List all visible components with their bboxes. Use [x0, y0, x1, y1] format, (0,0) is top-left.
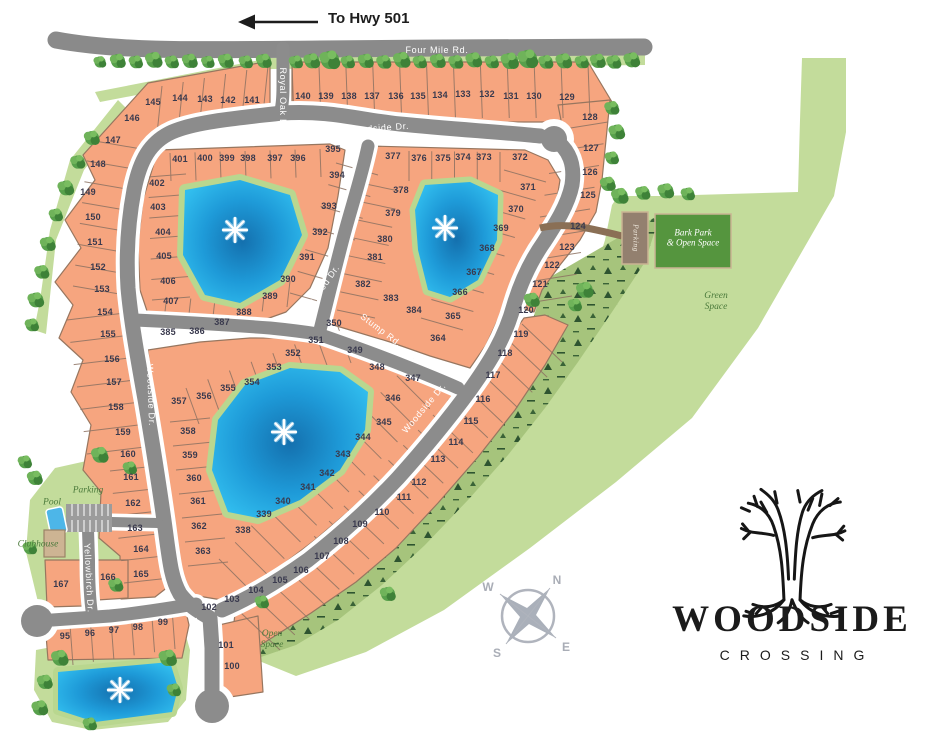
block-lot-167: [45, 560, 82, 607]
roundabout: [541, 126, 567, 152]
pool-parking-lot: [66, 504, 112, 532]
road-yellowbirch-dr: [88, 530, 92, 614]
bark-park-parking: [622, 212, 648, 264]
cul-de-sac-south: [195, 689, 229, 723]
to-hwy-501-label: To Hwy 501: [328, 10, 409, 27]
bark-park-area: [655, 214, 731, 268]
pond-4: [58, 662, 178, 722]
site-map-page: To Hwy 501 95969798991001011021031041051…: [0, 0, 934, 739]
logo-name: WOODSIDE: [642, 598, 934, 641]
compass-rose: [500, 588, 556, 644]
logo: WOODSIDE CROSSING: [642, 470, 934, 663]
road-four-mile-rd: [56, 40, 644, 50]
logo-subtitle: CROSSING: [642, 647, 934, 663]
clubhouse: [44, 530, 65, 557]
road-parking-drive: [112, 522, 158, 523]
cul-de-sac-west: [21, 605, 53, 637]
road-royal-oak-dr: [280, 48, 283, 114]
hwy-arrow: [238, 15, 318, 30]
